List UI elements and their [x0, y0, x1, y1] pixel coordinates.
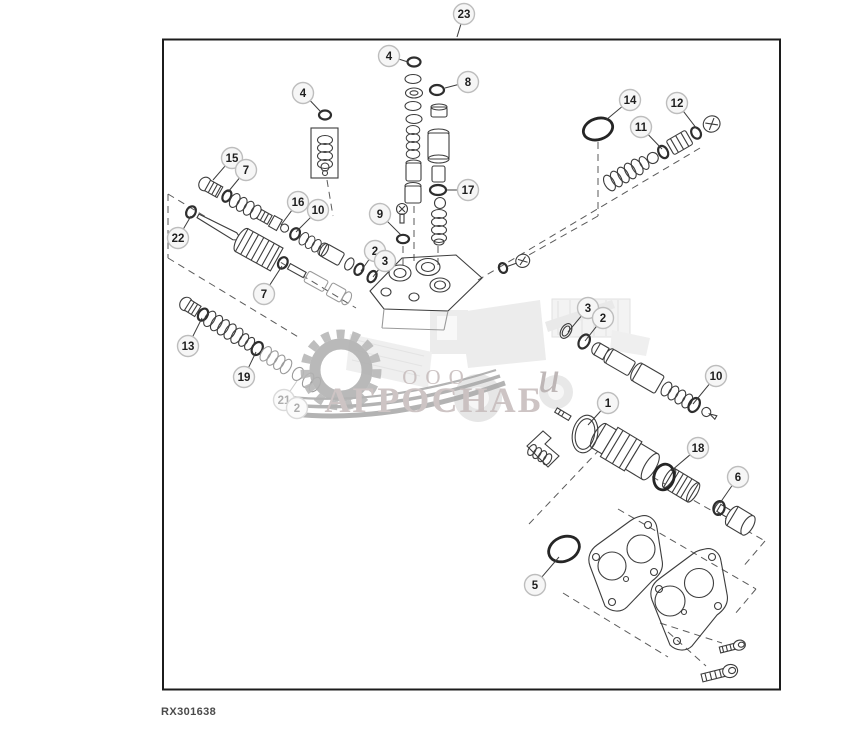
callout-5: 5 — [525, 557, 560, 596]
callout-2: 2 — [287, 398, 308, 419]
callout-1: 1 — [588, 393, 619, 426]
svg-text:13: 13 — [182, 341, 195, 353]
valve-stack-right-column — [428, 85, 449, 245]
svg-text:2: 2 — [294, 403, 300, 415]
bracket-and-spring — [526, 431, 559, 467]
callout-3: 3 — [373, 251, 396, 278]
svg-text:18: 18 — [692, 443, 705, 455]
callout-23: 23 — [454, 4, 475, 38]
svg-text:14: 14 — [624, 95, 637, 107]
callout-4: 4 — [379, 46, 409, 67]
callout-16: 16 — [281, 192, 309, 226]
exploded-parts-diagram: ООО АГРОСНАБ u 2348414121115717161092223… — [0, 0, 841, 731]
callout-8: 8 — [445, 72, 479, 93]
svg-text:4: 4 — [386, 51, 393, 63]
svg-text:11: 11 — [635, 122, 648, 134]
svg-text:2: 2 — [600, 313, 606, 325]
svg-text:5: 5 — [532, 580, 539, 592]
mounting-bolt-large — [700, 663, 739, 684]
callout-7: 7 — [254, 266, 283, 305]
valve-stack-left-column — [405, 58, 423, 204]
svg-text:6: 6 — [735, 472, 741, 484]
svg-text:22: 22 — [172, 233, 185, 245]
svg-text:7: 7 — [261, 289, 267, 301]
mounting-bolt-small — [719, 639, 747, 655]
svg-text:9: 9 — [377, 209, 383, 221]
svg-text:1: 1 — [605, 398, 612, 410]
svg-text:16: 16 — [292, 197, 305, 209]
svg-text:7: 7 — [243, 165, 249, 177]
watermark-script-letter: u — [538, 353, 560, 402]
svg-text:10: 10 — [312, 205, 325, 217]
callout-layer: 2348414121115717161092223732131019212118… — [168, 4, 749, 596]
callout-17: 17 — [447, 180, 479, 201]
relief-valve-box — [311, 111, 338, 179]
callout-19: 19 — [234, 352, 257, 388]
callout-13: 13 — [178, 318, 203, 357]
o-ring-5 — [544, 531, 583, 566]
o-ring-14 — [580, 114, 615, 143]
svg-text:19: 19 — [238, 372, 251, 384]
callout-10: 10 — [693, 366, 727, 405]
bolt-and-oring-9 — [397, 204, 410, 244]
figure-label: RX301638 — [161, 706, 216, 718]
svg-text:4: 4 — [300, 88, 307, 100]
svg-text:8: 8 — [465, 77, 472, 89]
svg-text:3: 3 — [382, 256, 388, 268]
callout-18: 18 — [671, 438, 709, 472]
svg-text:23: 23 — [458, 9, 471, 21]
callout-11: 11 — [631, 117, 663, 150]
plug-and-oring-right — [497, 252, 532, 275]
svg-text:12: 12 — [671, 98, 684, 110]
svg-text:10: 10 — [710, 371, 723, 383]
callout-22: 22 — [168, 216, 192, 249]
callout-14: 14 — [606, 90, 641, 121]
svg-text:17: 17 — [462, 185, 475, 197]
svg-text:15: 15 — [226, 153, 239, 165]
callout-6: 6 — [720, 467, 749, 504]
svg-text:3: 3 — [585, 303, 591, 315]
watermark-company-name: АГРОСНАБ — [325, 380, 544, 420]
callout-12: 12 — [667, 93, 698, 130]
callout-4: 4 — [293, 83, 321, 112]
